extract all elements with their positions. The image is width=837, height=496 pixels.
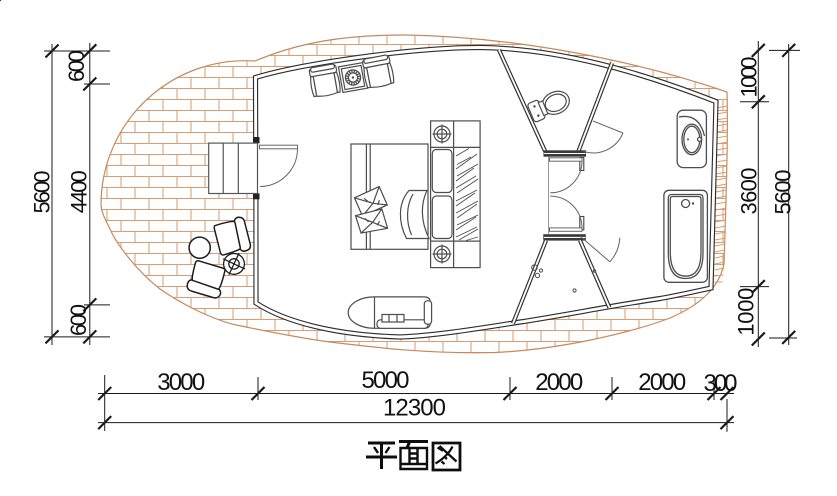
svg-text:1000: 1000: [734, 288, 759, 336]
svg-text:2000: 2000: [638, 369, 686, 396]
svg-text:3000: 3000: [157, 369, 205, 396]
svg-text:5600: 5600: [30, 171, 55, 214]
svg-text:600: 600: [64, 50, 89, 82]
svg-text:5600: 5600: [771, 170, 796, 215]
svg-text:2000: 2000: [535, 369, 583, 396]
svg-text:600: 600: [66, 304, 91, 336]
svg-text:3600: 3600: [737, 168, 762, 215]
svg-text:5000: 5000: [362, 367, 410, 394]
svg-text:1000: 1000: [737, 57, 762, 98]
svg-text:12300: 12300: [383, 395, 446, 422]
svg-text:4400: 4400: [67, 170, 92, 213]
svg-text:300: 300: [704, 370, 738, 397]
